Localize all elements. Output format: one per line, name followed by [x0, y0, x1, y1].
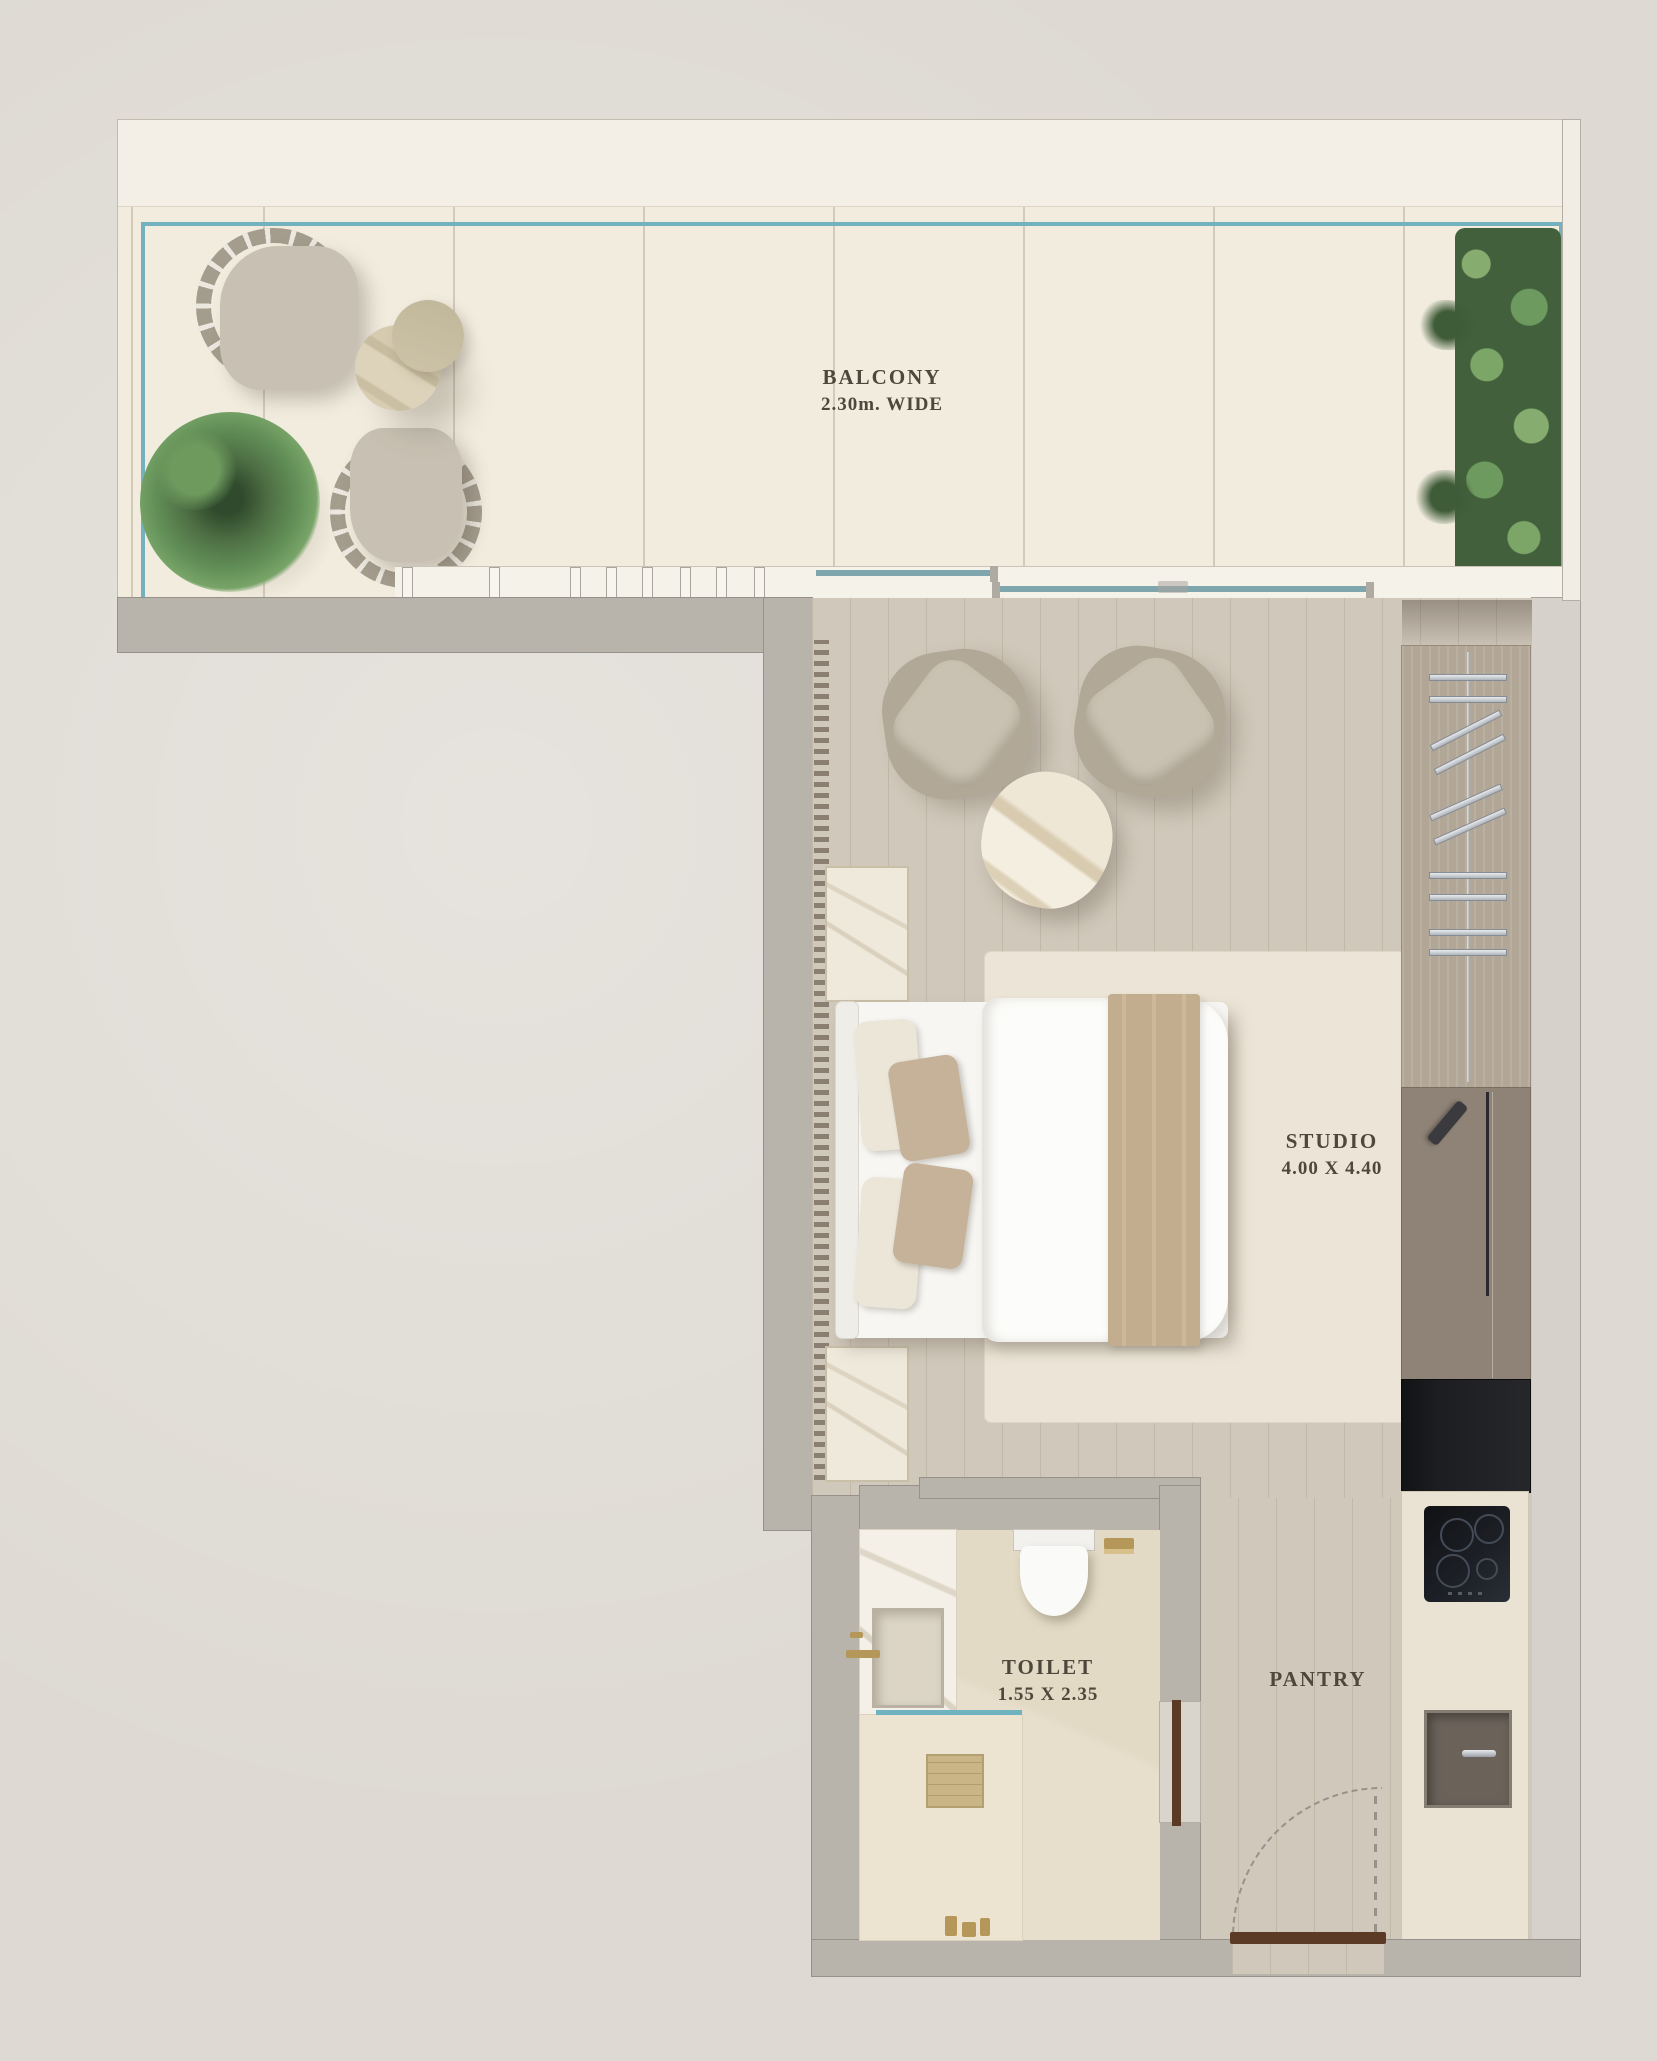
toilet-dimension: 1.55 X 2.35: [948, 1681, 1148, 1708]
dimension-marker: [1158, 581, 1188, 593]
hanger: [1430, 697, 1506, 702]
counter-divider-line: [1492, 1092, 1493, 1378]
toilet-right-wall-upper: [1160, 1486, 1200, 1702]
chair-cushion: [350, 428, 462, 562]
cooktop-controls: [1448, 1592, 1488, 1595]
door-leaf-dashed: [1374, 1792, 1377, 1932]
shower-floor: [860, 1715, 1022, 1940]
glass-panel-tick: [681, 568, 690, 598]
sliding-door-cap-1: [990, 566, 998, 582]
toilet-bowl: [1020, 1546, 1088, 1616]
burner-large-3: [1436, 1554, 1470, 1588]
planter-leaf-1: [1418, 300, 1478, 350]
balcony-dimension: 2.30m. WIDE: [772, 391, 992, 418]
hanger-rail: [1467, 652, 1470, 1082]
toilet-paper-holder: [1104, 1538, 1134, 1554]
toiletries-bottle-2: [962, 1922, 976, 1937]
hanger: [1430, 930, 1506, 935]
studio-left-wall: [764, 598, 812, 1530]
toilet-left-wall: [812, 1496, 860, 1976]
pantry-label: PANTRY: [1218, 1666, 1418, 1693]
pocket-door: [1172, 1700, 1181, 1826]
glass-panel-tick: [403, 568, 412, 598]
shower-screen: [876, 1710, 1022, 1715]
vanity-faucet-handle: [850, 1632, 863, 1638]
balcony-glass-border-top: [141, 222, 1563, 226]
bed: [836, 1002, 1228, 1338]
entry-threshold: [1232, 1940, 1384, 1974]
entrance-door: [1230, 1932, 1386, 1944]
shower-drain: [928, 1756, 982, 1806]
burner-large-1: [1440, 1518, 1474, 1552]
lounge-chair-cushion: [882, 649, 1032, 799]
balcony-right-parapet: [1563, 120, 1580, 600]
sliding-door-cap-3: [1366, 582, 1374, 598]
outdoor-side-table-small: [392, 300, 464, 372]
glass-panel-tick: [755, 568, 764, 598]
lounge-chair-cushion: [1075, 647, 1225, 797]
hanger: [1430, 895, 1506, 900]
sliding-door-cap-2: [992, 582, 1000, 598]
toilet-top-wall-thick: [920, 1478, 1200, 1498]
wardrobe-shadow: [1402, 600, 1532, 652]
glass-panel-tick: [607, 568, 616, 598]
wardrobe: [1402, 646, 1530, 1088]
hanger: [1430, 873, 1506, 878]
glass-panel-tick: [643, 568, 652, 598]
unit-right-wall: [1532, 598, 1580, 1976]
toilet-right-wall-lower: [1160, 1822, 1200, 1942]
refrigerator: [1402, 1380, 1530, 1492]
balcony-glass-border-left: [141, 222, 145, 600]
unit-bottom-wall: [812, 1940, 1580, 1976]
burner-small: [1476, 1558, 1498, 1580]
kitchen-tall-counter: [1402, 1088, 1530, 1380]
pantry-label-block: PANTRY: [1218, 1666, 1418, 1693]
burner-large-2: [1474, 1514, 1504, 1544]
balcony-label-block: BALCONY 2.30m. WIDE: [772, 364, 992, 418]
toilet-label-block: TOILET 1.55 X 2.35: [948, 1654, 1148, 1708]
throw-blanket: [1108, 994, 1200, 1346]
hanger: [1430, 950, 1506, 955]
outdoor-wicker-chair-1: [196, 228, 352, 384]
bedside-mat-top: [827, 868, 907, 1000]
toilet-fixture: [1014, 1530, 1094, 1618]
plant-leaf-cluster: [150, 430, 240, 510]
glass-panel-tick: [490, 568, 499, 598]
vertical-planter: [1455, 228, 1561, 588]
toiletries-bottle-3: [980, 1918, 990, 1936]
toiletries-bottle-1: [945, 1916, 957, 1936]
kitchen-sink: [1424, 1710, 1512, 1808]
counter-edge-line: [1486, 1092, 1489, 1296]
glass-panel-tick: [571, 568, 580, 598]
bedside-mat-bottom: [827, 1348, 907, 1480]
sliding-door-panel-1: [816, 570, 996, 576]
vanity-faucet: [846, 1650, 880, 1658]
vanity-sink: [872, 1608, 944, 1708]
floor-plan-canvas: BALCONY 2.30m. WIDE: [0, 0, 1657, 2061]
pillow-tan-bottom: [891, 1162, 974, 1271]
balcony-label: BALCONY: [772, 364, 992, 391]
chair-cushion: [220, 246, 358, 390]
glass-panel-tick: [717, 568, 726, 598]
cooktop: [1424, 1506, 1510, 1602]
toilet-label: TOILET: [948, 1654, 1148, 1681]
hanger: [1430, 675, 1506, 680]
balcony-parapet-wall: [118, 598, 764, 652]
kitchen-faucet: [1462, 1750, 1496, 1757]
